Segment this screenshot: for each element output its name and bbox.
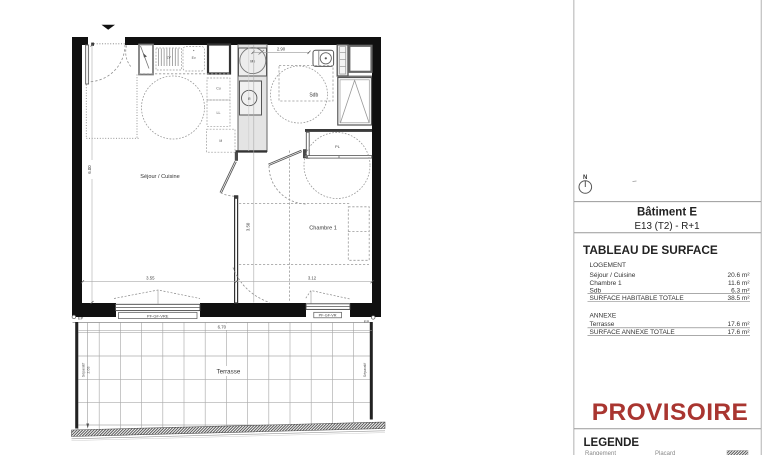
svg-text:Mb: Mb [250,59,255,63]
svg-text:Sdb: Sdb [309,92,318,98]
svg-text:PROVISOIRE: PROVISOIRE [592,399,748,426]
svg-text:N: N [583,175,587,181]
svg-text:20.6 m²: 20.6 m² [727,272,750,279]
svg-text:Cu: Cu [216,87,221,91]
svg-text:3.12: 3.12 [308,276,317,281]
svg-text:2.90: 2.90 [277,46,286,51]
svg-text:M: M [219,139,222,143]
svg-text:6.00: 6.00 [87,165,92,174]
svg-text:Séjour / Cuisine: Séjour / Cuisine [590,272,636,279]
svg-text:TABLEAU DE SURFACE: TABLEAU DE SURFACE [583,243,718,257]
svg-text:Terrasse: Terrasse [590,321,615,328]
svg-text:SURFACE ANNEXE TOTALE: SURFACE ANNEXE TOTALE [590,329,676,336]
svg-text:2.63: 2.63 [86,367,90,374]
svg-text:Rangement: Rangement [585,451,616,455]
svg-text:11.6 m²: 11.6 m² [728,280,750,287]
svg-text:Chambre 1: Chambre 1 [590,280,623,287]
svg-text:ANNEXE: ANNEXE [590,312,617,319]
svg-text:EP: EP [78,316,84,321]
svg-text:R: R [248,96,251,101]
svg-text:Séjour / Cuisine: Séjour / Cuisine [140,174,180,180]
svg-text:LEGENDE: LEGENDE [584,437,640,449]
svg-text:PF-GF-VRE: PF-GF-VRE [147,313,169,318]
svg-text:6.70: 6.70 [218,324,227,329]
svg-text:Terrasse: Terrasse [217,369,241,376]
svg-text:EP: EP [364,319,370,324]
svg-text:3.50: 3.50 [245,222,250,231]
svg-text:38.5 m²: 38.5 m² [727,295,750,302]
svg-text:PF-GF-VR: PF-GF-VR [319,314,337,318]
svg-text:LOGEMENT: LOGEMENT [590,262,627,269]
svg-text:LL: LL [217,111,221,115]
svg-text:Séparatif: Séparatif [363,363,367,377]
svg-text:SURFACE HABITABLE TOTALE: SURFACE HABITABLE TOTALE [590,295,685,302]
svg-text:Placard: Placard [655,451,675,455]
svg-text:Ev: Ev [192,56,196,60]
svg-text:PL: PL [335,144,341,149]
svg-text:E13 (T2) - R+1: E13 (T2) - R+1 [634,221,699,232]
svg-text:LV: LV [167,56,172,60]
svg-text:17.6 m²: 17.6 m² [727,321,750,328]
svg-text:Bâtiment E: Bâtiment E [637,207,697,219]
svg-text:Séparatif: Séparatif [82,363,86,377]
svg-text:Chambre 1: Chambre 1 [309,226,337,232]
svg-text:3.55: 3.55 [146,275,155,280]
svg-text:17.6 m²: 17.6 m² [727,329,750,336]
